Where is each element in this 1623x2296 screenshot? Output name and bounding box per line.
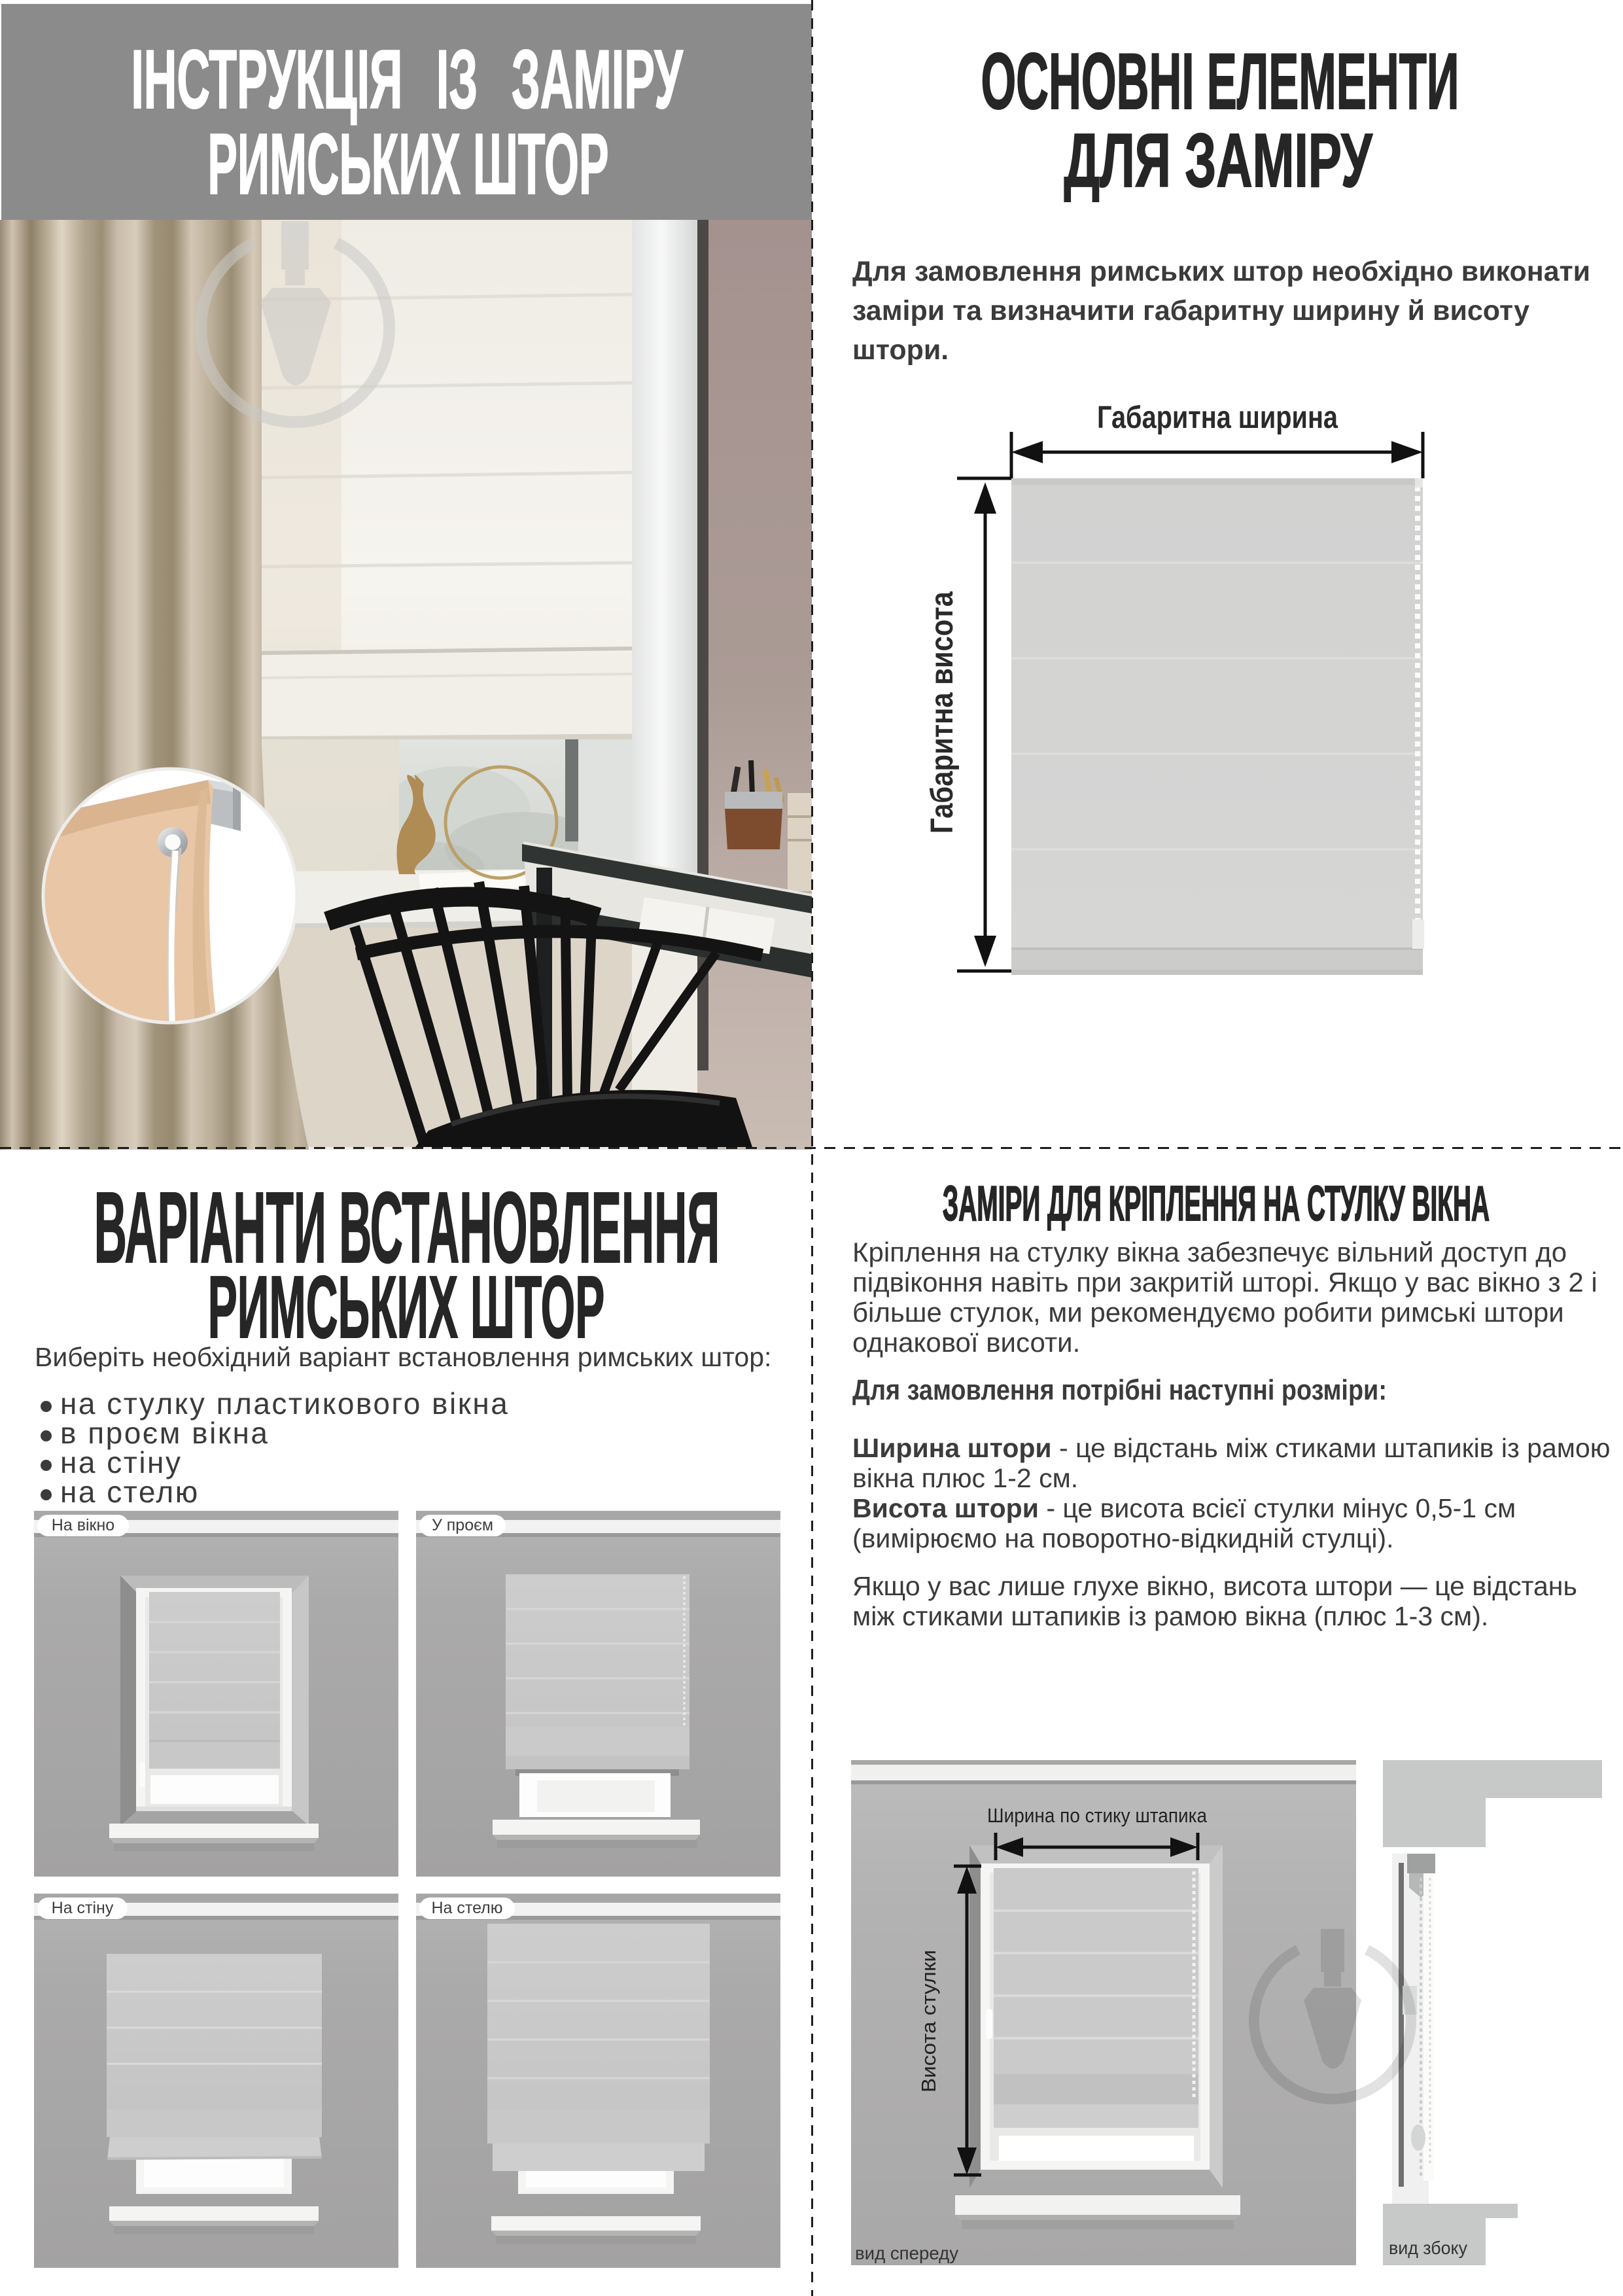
svg-text:вид збоку: вид збоку [1389,2238,1467,2258]
svg-text:Ширина по стику штапика: Ширина по стику штапика [987,1804,1208,1827]
svg-text:Габаритна ширина: Габаритна ширина [1097,400,1338,435]
svg-text:Висота стулки: Висота стулки [917,1950,940,2093]
svg-text:Габаритна висота: Габаритна висота [925,592,960,834]
svg-text:вид спереду: вид спереду [855,2243,958,2263]
